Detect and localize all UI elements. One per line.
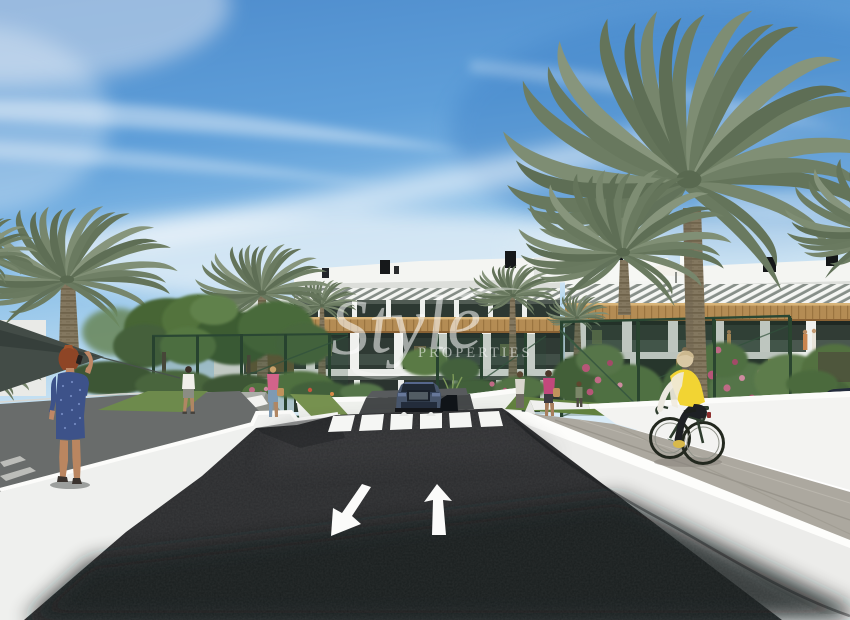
svg-text:PROPERTIES: PROPERTIES (418, 345, 533, 361)
